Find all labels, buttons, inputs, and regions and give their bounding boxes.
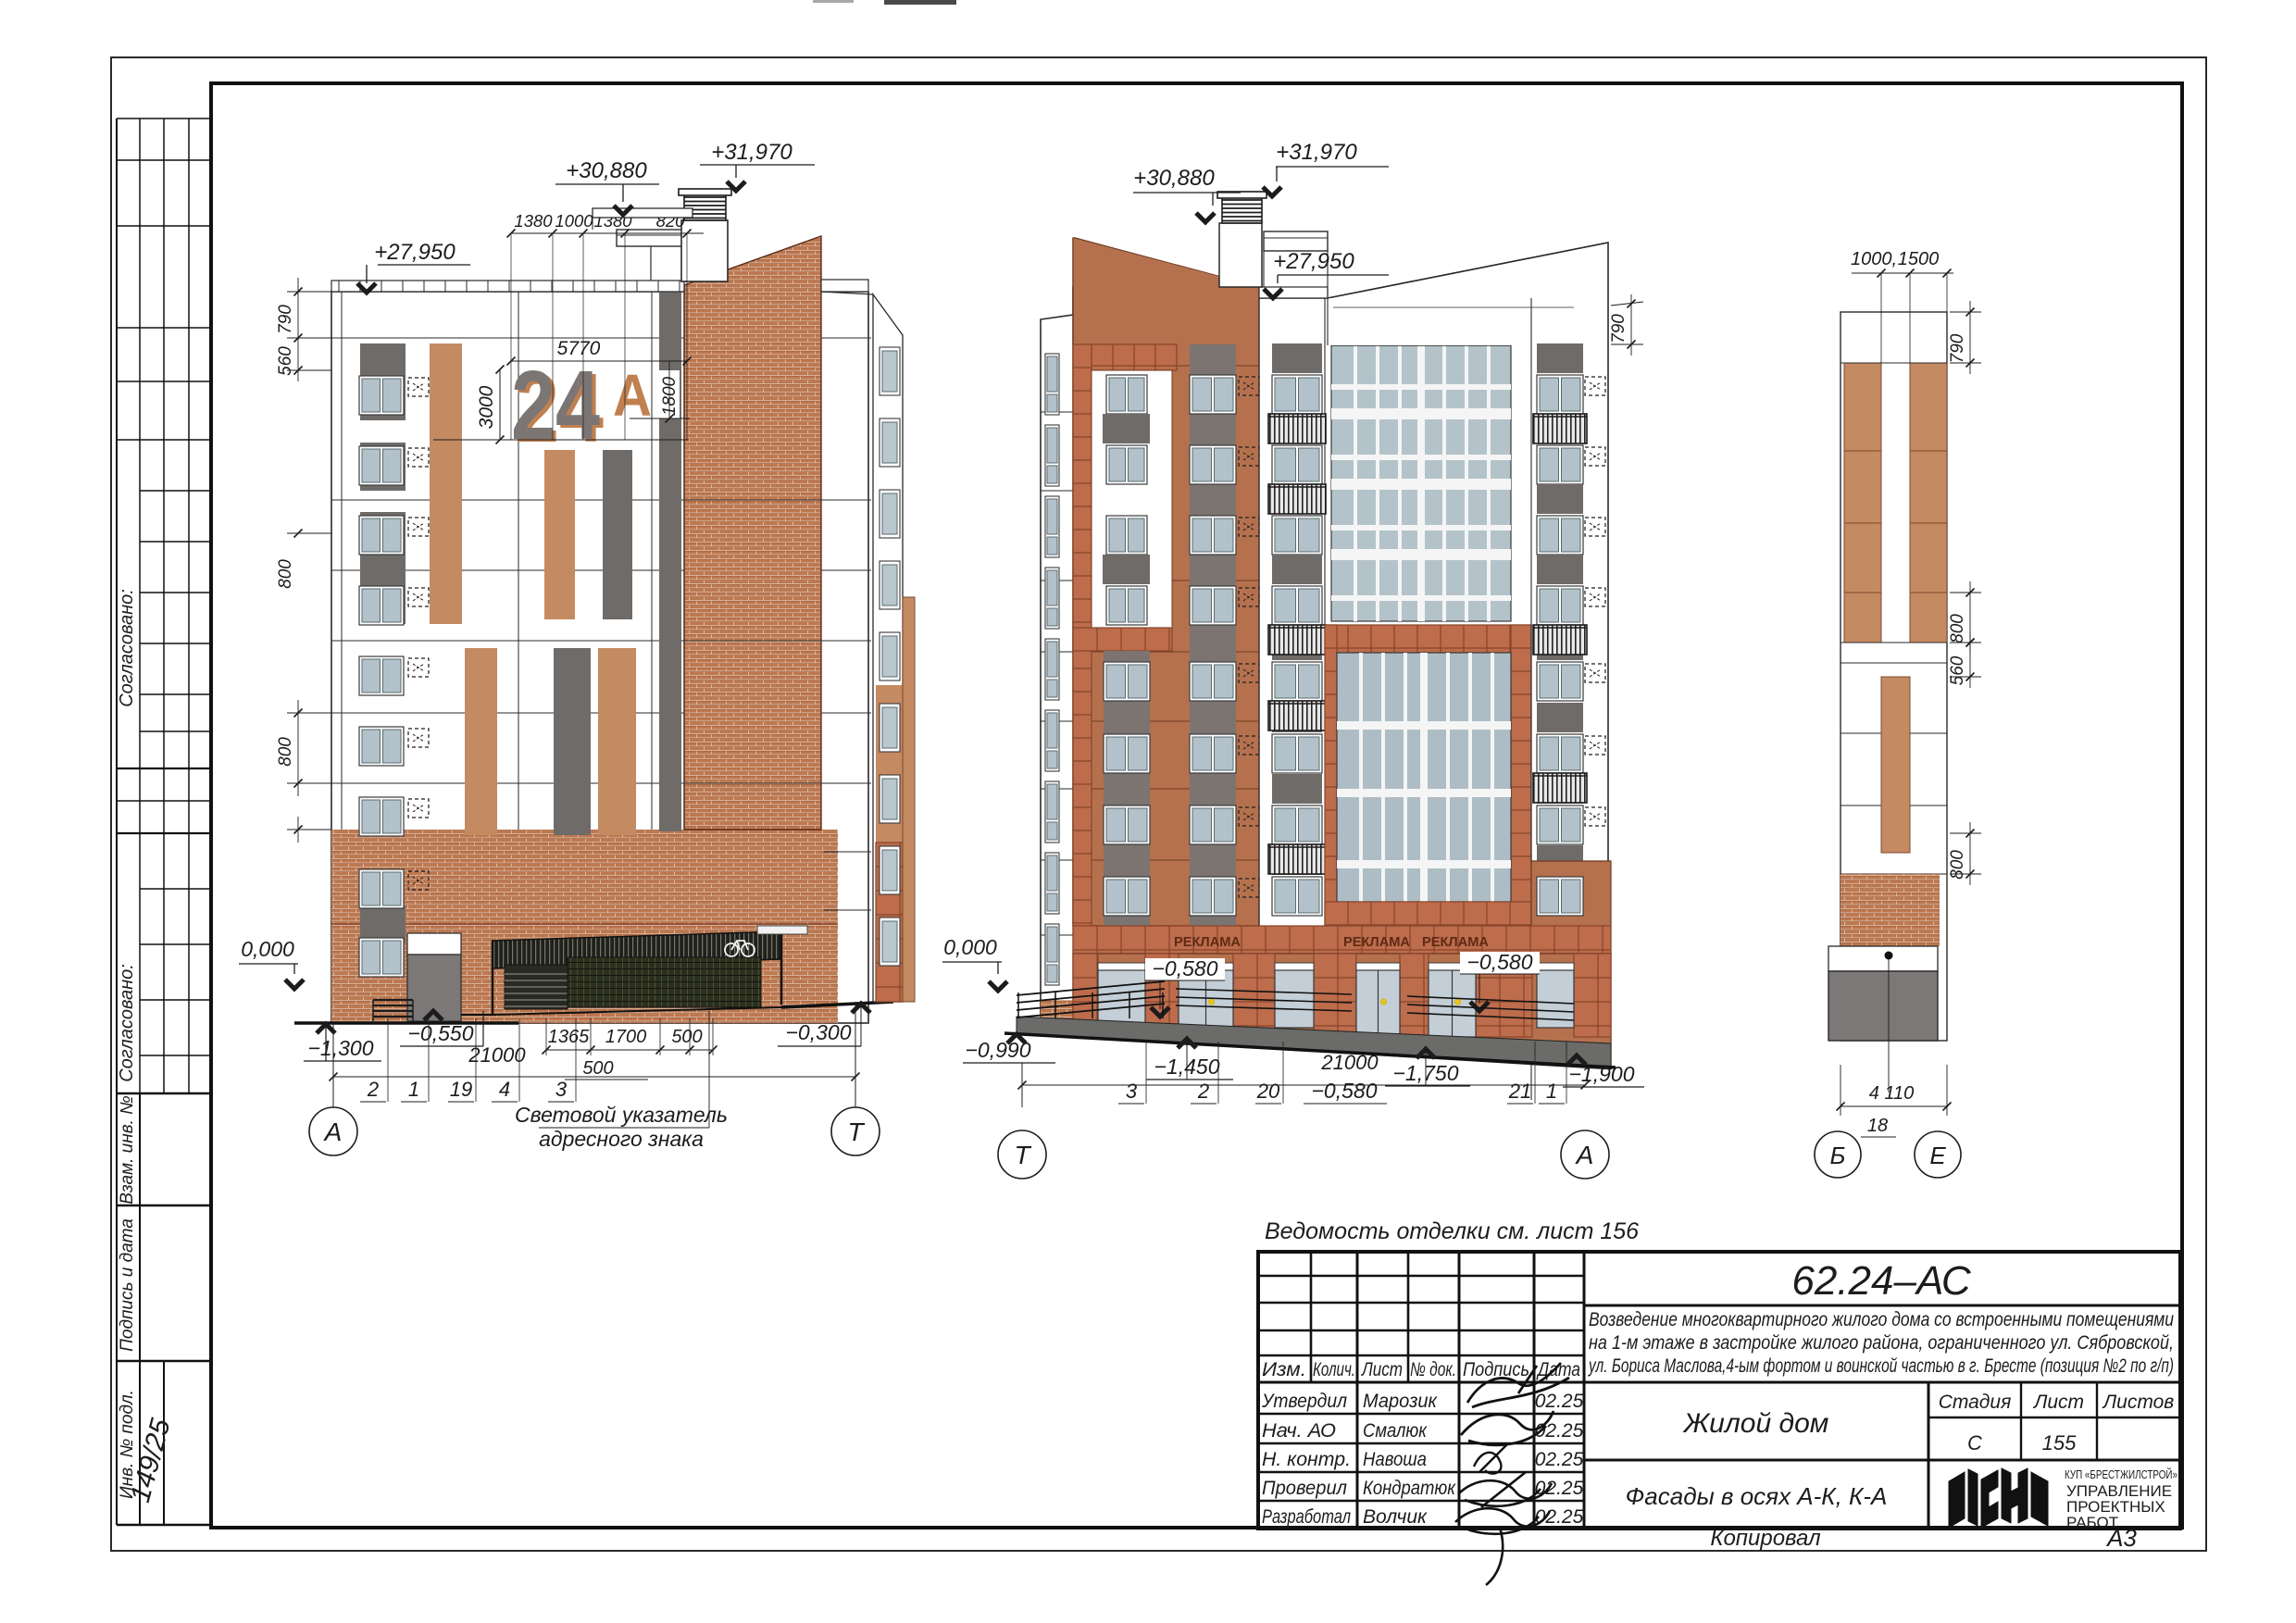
svg-text:155: 155 [2042, 1431, 2077, 1454]
svg-text:Разработал: Разработал [1262, 1506, 1351, 1528]
svg-text:Колич.: Колич. [1313, 1359, 1355, 1380]
svg-text:1365: 1365 [548, 1027, 590, 1047]
svg-text:790: 790 [1609, 314, 1628, 343]
svg-text:С: С [1967, 1431, 1982, 1454]
svg-text:−0,300: −0,300 [786, 1020, 852, 1044]
svg-text:Дата: Дата [1536, 1359, 1580, 1380]
svg-text:18: 18 [1867, 1116, 1888, 1136]
svg-text:Кондратюк: Кондратюк [1363, 1478, 1456, 1499]
svg-text:4 110: 4 110 [1869, 1083, 1915, 1104]
svg-text:−1,900: −1,900 [1569, 1062, 1635, 1086]
svg-text:800: 800 [276, 737, 295, 767]
svg-text:Т: Т [847, 1117, 865, 1146]
svg-text:02.25: 02.25 [1535, 1449, 1584, 1470]
svg-text:560: 560 [276, 346, 295, 376]
svg-text:19: 19 [450, 1078, 472, 1101]
svg-text:КУП «БРЕСТЖИЛСТРОЙ»: КУП «БРЕСТЖИЛСТРОЙ» [2065, 1467, 2177, 1481]
svg-text:Согласовано:: Согласовано: [117, 589, 137, 707]
svg-text:Марозик: Марозик [1363, 1391, 1438, 1412]
svg-text:2: 2 [1197, 1080, 1209, 1103]
svg-text:02.25: 02.25 [1535, 1391, 1584, 1412]
svg-text:1500: 1500 [1898, 249, 1940, 269]
svg-text:20: 20 [1256, 1080, 1280, 1103]
svg-text:Нач. АО: Нач. АО [1262, 1420, 1336, 1442]
svg-text:Взам. инв. №: Взам. инв. № [118, 1095, 137, 1205]
svg-text:500: 500 [582, 1058, 613, 1079]
svg-text:−1,450: −1,450 [1154, 1055, 1220, 1079]
svg-text:1380: 1380 [514, 211, 553, 231]
svg-text:1800: 1800 [660, 376, 680, 416]
svg-text:62.24–АС: 62.24–АС [1791, 1258, 1971, 1304]
svg-text:А3: А3 [2105, 1524, 2137, 1552]
svg-text:А: А [1575, 1141, 1594, 1169]
svg-text:Утвердил: Утвердил [1261, 1391, 1347, 1412]
svg-text:800: 800 [1948, 614, 1967, 643]
svg-text:02.25: 02.25 [1535, 1506, 1584, 1528]
svg-text:−1,300: −1,300 [308, 1036, 374, 1060]
svg-text:Согласовано:: Согласовано: [117, 964, 137, 1082]
svg-text:Смалюк: Смалюк [1363, 1420, 1428, 1442]
svg-text:№ док.: № док. [1410, 1359, 1456, 1380]
svg-text:+27,950: +27,950 [1273, 249, 1354, 274]
svg-text:Копировал: Копировал [1710, 1526, 1821, 1551]
svg-text:Н. контр.: Н. контр. [1262, 1449, 1351, 1470]
svg-text:5770: 5770 [557, 338, 601, 359]
svg-text:Листов: Листов [2102, 1392, 2175, 1413]
svg-text:Навоша: Навоша [1363, 1449, 1427, 1470]
svg-text:адресного знака: адресного знака [539, 1127, 704, 1151]
svg-text:790: 790 [1948, 333, 1967, 363]
svg-text:500: 500 [671, 1027, 702, 1047]
svg-text:1000,: 1000, [1851, 249, 1897, 269]
svg-text:−0,550: −0,550 [408, 1021, 474, 1045]
svg-text:Подпись: Подпись [1463, 1359, 1529, 1380]
svg-text:1: 1 [1546, 1080, 1557, 1103]
svg-text:+30,880: +30,880 [566, 158, 647, 183]
svg-text:0,000: 0,000 [241, 937, 294, 961]
svg-text:0,000: 0,000 [943, 935, 997, 959]
svg-text:+30,880: +30,880 [1133, 166, 1215, 191]
svg-text:3: 3 [555, 1078, 568, 1101]
svg-text:21000: 21000 [1320, 1051, 1379, 1074]
svg-text:Ведомость отделки см. лист 156: Ведомость отделки см. лист 156 [1265, 1218, 1639, 1244]
svg-text:−0,580: −0,580 [1153, 956, 1218, 980]
svg-text:+27,950: +27,950 [374, 240, 455, 265]
svg-text:Возведение многоквартирного жи: Возведение многоквартирного жилого дома … [1589, 1309, 2174, 1330]
svg-text:Е: Е [1929, 1142, 1946, 1169]
svg-text:Волчик: Волчик [1363, 1506, 1428, 1528]
svg-text:ул. Бориса Маслова,4-ым фортом: ул. Бориса Маслова,4-ым фортом и воинско… [1588, 1355, 2174, 1377]
svg-text:Проверил: Проверил [1262, 1478, 1347, 1499]
svg-text:РЕКЛАМА: РЕКЛАМА [1422, 934, 1489, 950]
svg-text:800: 800 [276, 559, 295, 589]
svg-text:2: 2 [367, 1078, 379, 1101]
svg-text:Стадия: Стадия [1939, 1392, 2012, 1413]
svg-text:Т: Т [1014, 1141, 1031, 1169]
svg-text:1: 1 [408, 1078, 419, 1101]
svg-text:4: 4 [499, 1078, 510, 1101]
svg-text:−0,580: −0,580 [1312, 1079, 1378, 1103]
svg-text:РЕКЛАМА: РЕКЛАМА [1174, 934, 1241, 950]
svg-text:Лист: Лист [1360, 1359, 1403, 1380]
svg-text:3000: 3000 [476, 385, 497, 429]
svg-text:−0,990: −0,990 [966, 1038, 1031, 1062]
svg-text:1000: 1000 [555, 211, 593, 231]
svg-text:+31,970: +31,970 [1276, 140, 1357, 165]
svg-text:Изм.: Изм. [1262, 1359, 1306, 1380]
svg-text:1700: 1700 [605, 1027, 647, 1047]
svg-text:А: А [323, 1117, 343, 1146]
svg-text:Жилой дом: Жилой дом [1682, 1408, 1829, 1439]
svg-text:21000: 21000 [468, 1043, 526, 1067]
svg-text:Б: Б [1830, 1142, 1846, 1169]
svg-text:24: 24 [511, 351, 600, 460]
svg-text:+31,970: +31,970 [711, 140, 792, 165]
svg-text:−0,580: −0,580 [1467, 950, 1533, 974]
svg-text:−1,750: −1,750 [1393, 1061, 1459, 1085]
svg-text:РЕКЛАМА: РЕКЛАМА [1343, 934, 1410, 950]
svg-text:3: 3 [1126, 1080, 1138, 1103]
svg-text:800: 800 [1948, 850, 1967, 880]
svg-text:Фасады в осях А-К, К-А: Фасады в осях А-К, К-А [1626, 1482, 1888, 1510]
svg-text:560: 560 [1948, 655, 1967, 685]
svg-text:на 1-м этаже в застройке жилог: на 1-м этаже в застройке жилого района, … [1589, 1332, 2174, 1354]
svg-text:Световой указатель: Световой указатель [515, 1103, 728, 1127]
svg-text:21: 21 [1508, 1080, 1531, 1103]
svg-text:790: 790 [276, 305, 295, 334]
svg-text:Подпись и дата: Подпись и дата [118, 1218, 137, 1352]
svg-text:Лист: Лист [2032, 1392, 2084, 1413]
